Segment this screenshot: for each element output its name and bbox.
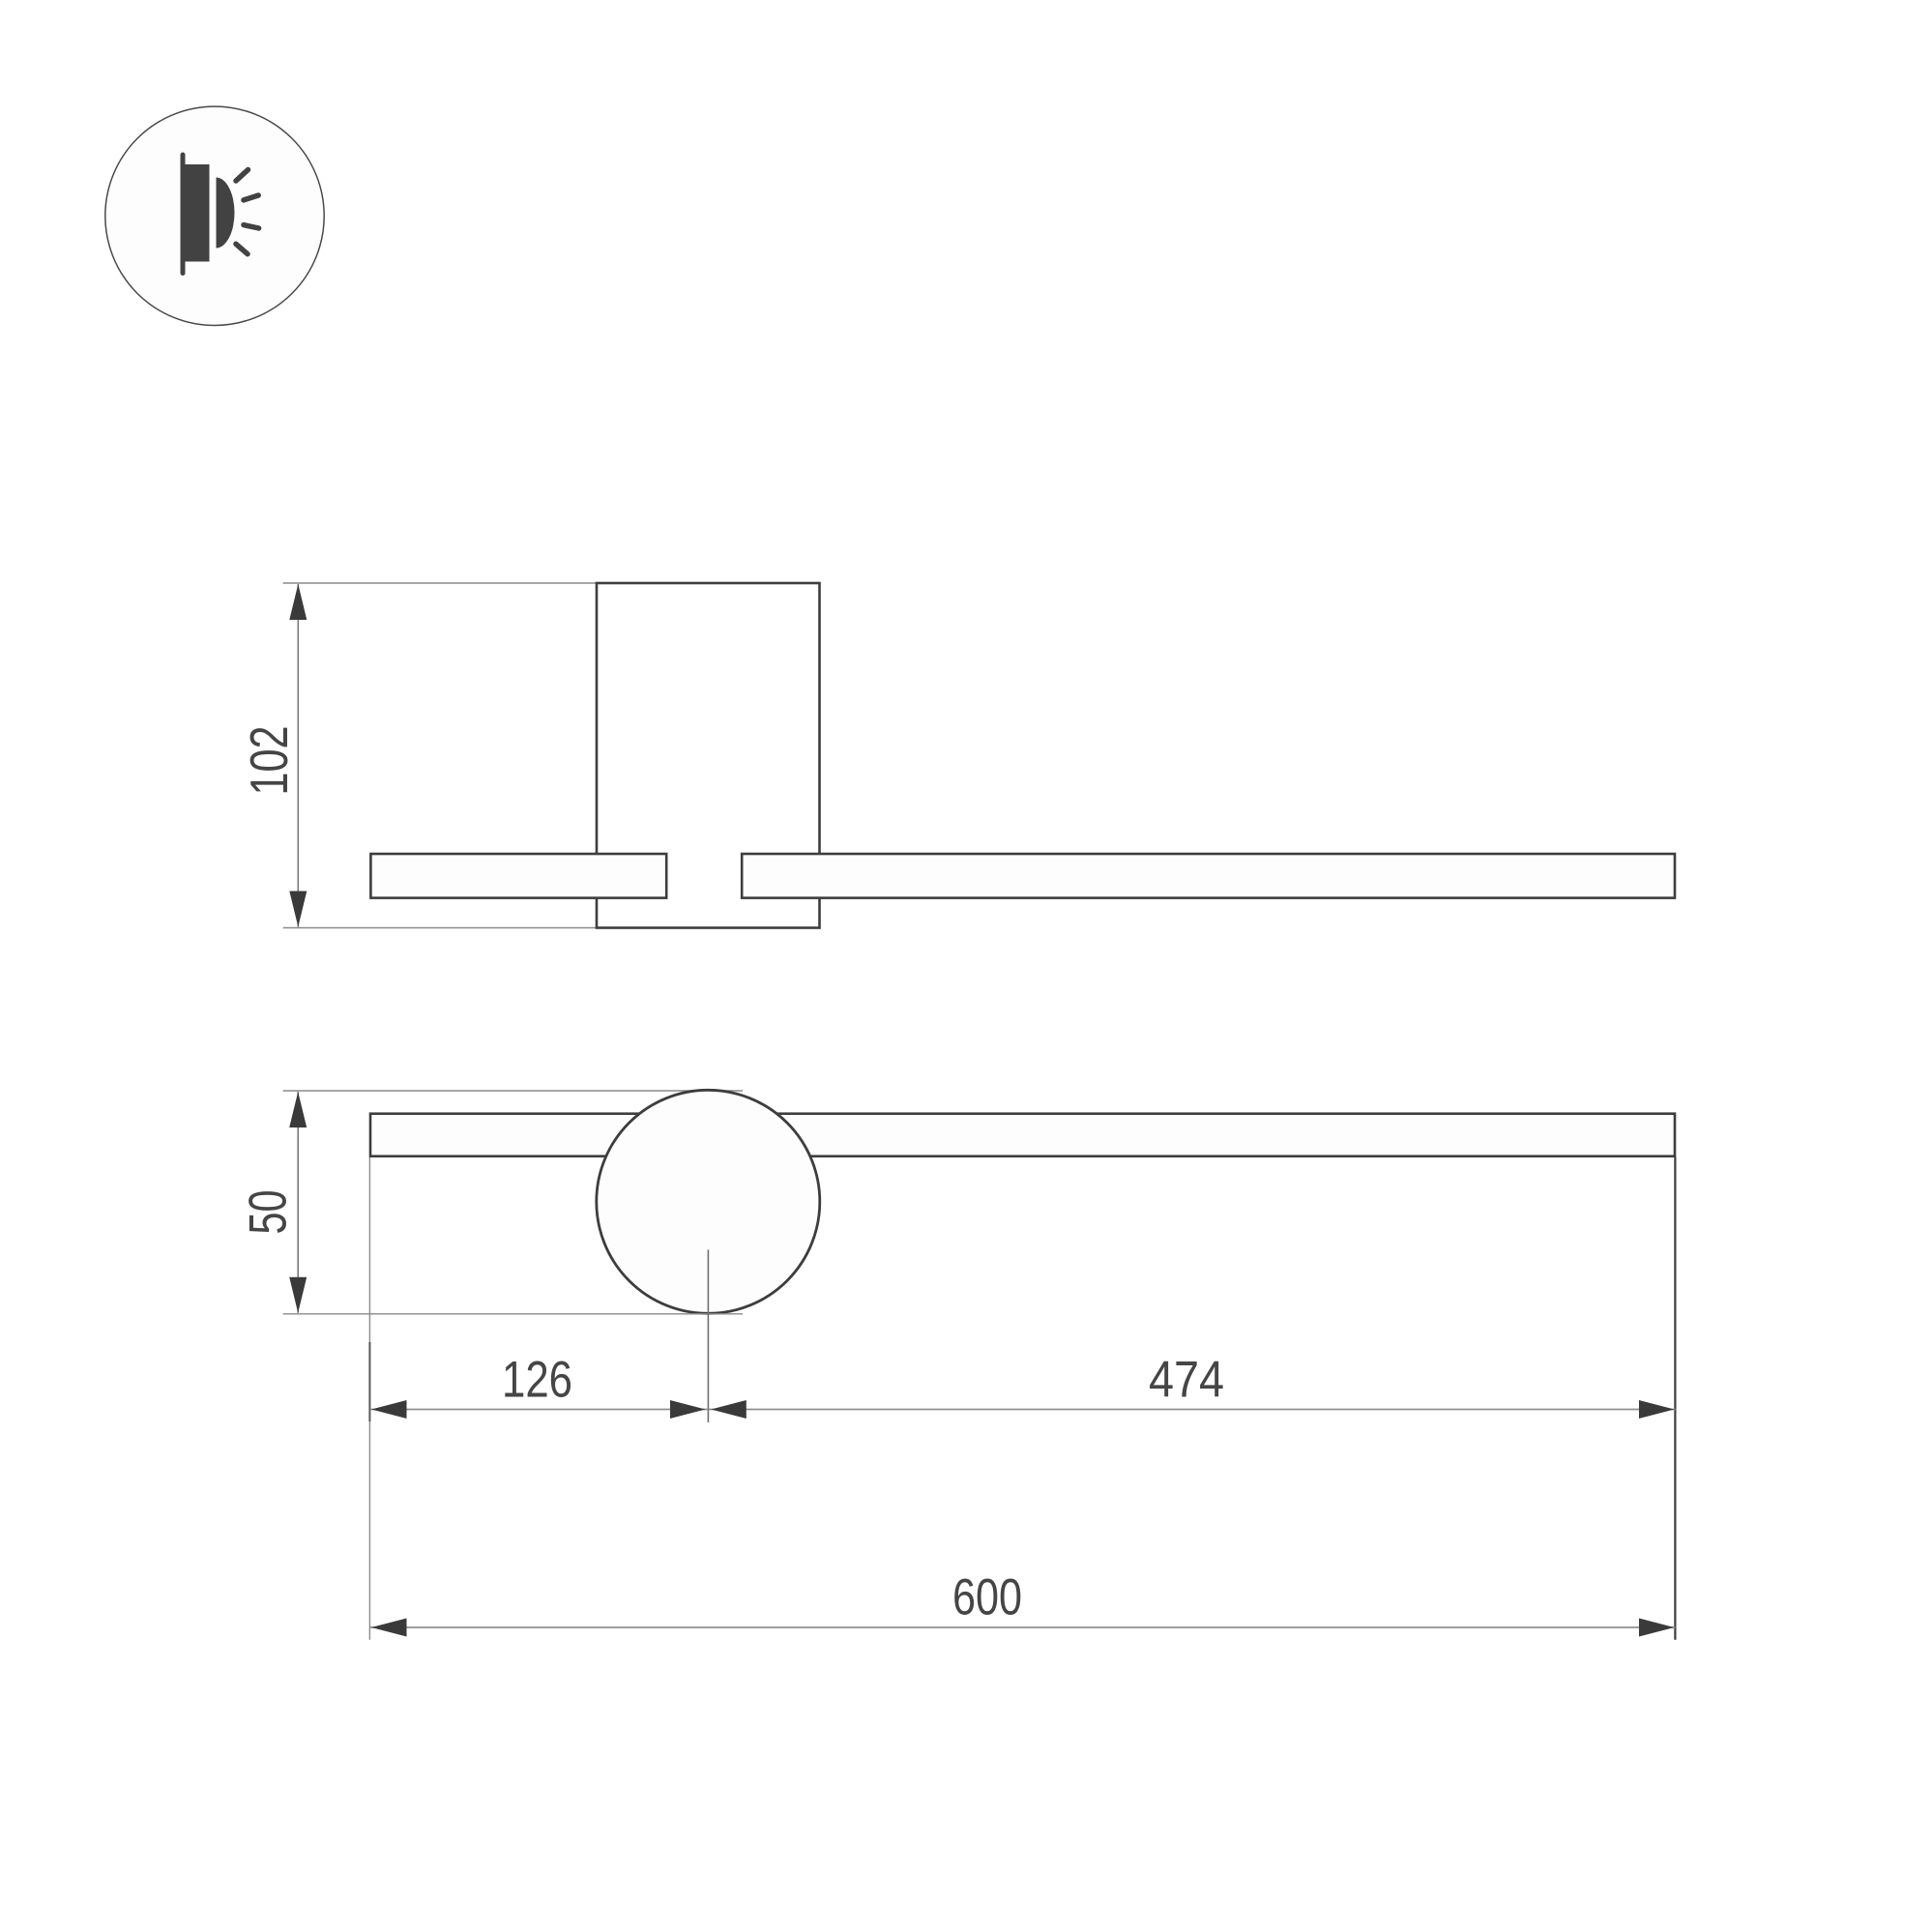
svg-text:474: 474	[1149, 1352, 1224, 1409]
svg-text:50: 50	[238, 1190, 298, 1235]
svg-text:600: 600	[952, 1569, 1022, 1626]
svg-text:102: 102	[239, 726, 299, 796]
svg-text:126: 126	[502, 1352, 572, 1409]
